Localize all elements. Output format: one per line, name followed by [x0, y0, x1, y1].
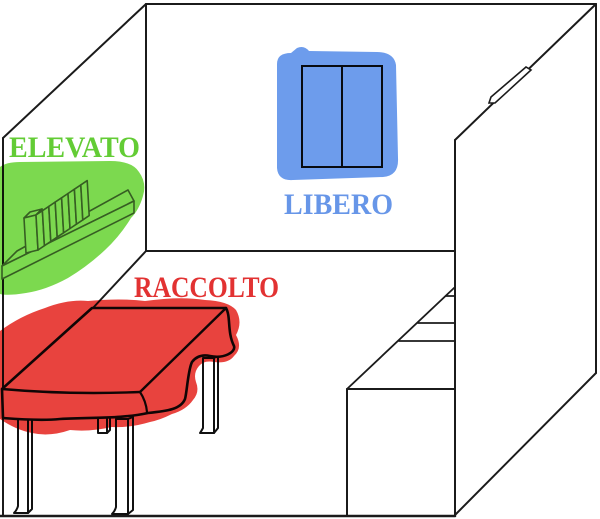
stairs-slope: [347, 288, 454, 389]
wardrobe: [455, 4, 596, 515]
left-wall-ceiling-edge: [3, 4, 146, 138]
wardrobe-handle: [489, 67, 531, 103]
highlight-libero: [277, 47, 398, 180]
table-leg: [112, 419, 128, 514]
table-leg: [14, 418, 28, 513]
label-libero: LIBERO: [284, 188, 393, 221]
wardrobe-bottom-edge: [455, 373, 596, 515]
room-sketch: ELEVATO LIBERO RACCOLTO: [0, 0, 600, 519]
label-elevato: ELEVATO: [9, 131, 140, 164]
label-raccolto: RACCOLTO: [134, 271, 279, 304]
stairs-storage-box: [347, 288, 454, 516]
table-leg: [200, 358, 214, 433]
